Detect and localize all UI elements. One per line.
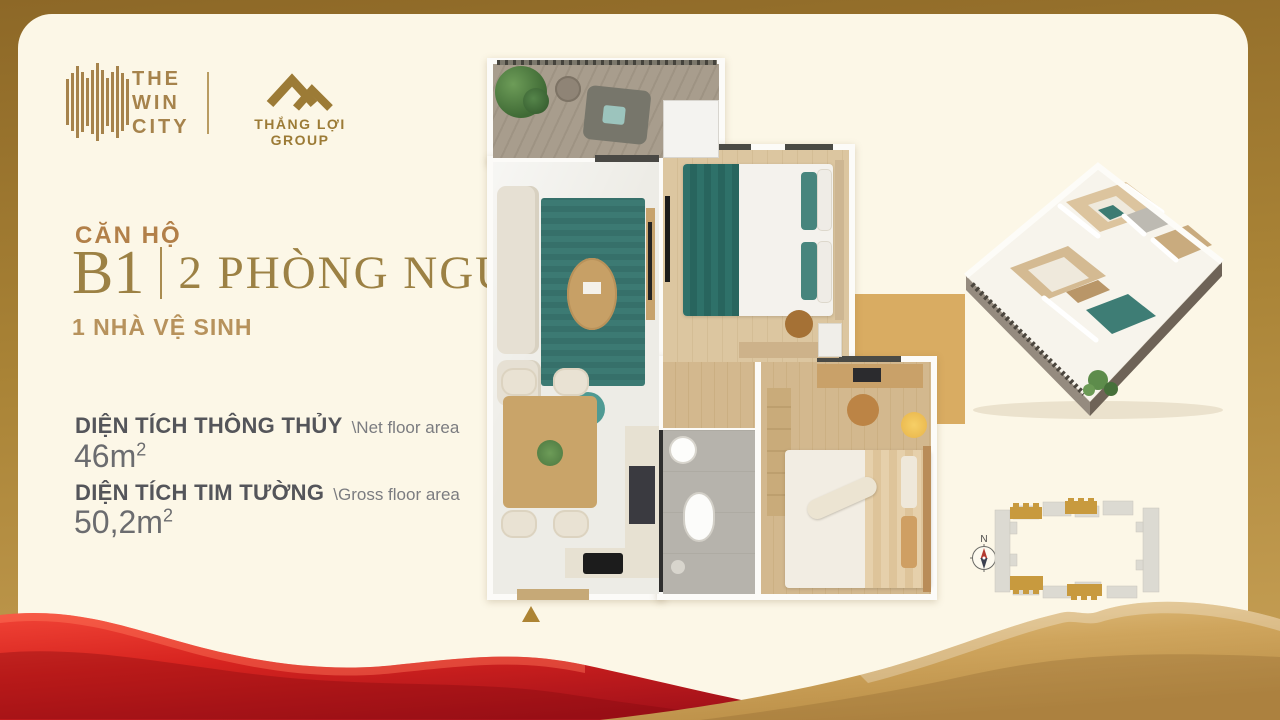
gross-area-label: DIỆN TÍCH TIM TƯỜNG (75, 480, 324, 506)
bedroom2-entry-floor (663, 362, 755, 428)
fridge (629, 466, 655, 524)
dining-plant (537, 440, 563, 466)
toilet (685, 494, 713, 540)
bedroom1-window (785, 144, 833, 150)
logo-divider (207, 72, 209, 134)
ribbon-waves (0, 545, 1280, 720)
logo-line: WIN (132, 91, 190, 115)
bed-1-headboard (835, 160, 844, 320)
bedroom1-tv (665, 196, 670, 282)
pillow (818, 170, 831, 230)
unit-bedrooms: 2 PHÒNG NGỦ (178, 247, 511, 299)
nightstand (819, 324, 841, 356)
dining-chair (553, 368, 589, 396)
coffee-table-book (583, 282, 601, 294)
balcony-sliding-door (595, 155, 659, 162)
bedroom1-stool (785, 310, 813, 338)
win-city-logo-text: THE WIN CITY (132, 67, 190, 139)
brochure-page: THE WIN CITY THẮNG LỢI GROUP CĂN HỘ B1 2… (0, 0, 1280, 720)
pillow (818, 242, 831, 302)
net-area-label: DIỆN TÍCH THÔNG THỦY (75, 413, 343, 439)
net-area-sublabel: \Net floor area (352, 418, 460, 438)
unit-title-row: B1 2 PHÒNG NGỦ (72, 242, 511, 304)
balcony-cabinet (663, 100, 719, 158)
gross-area-value: 50,2m2 (74, 504, 173, 541)
floor-plan (487, 58, 967, 620)
pillow (901, 456, 917, 508)
logo-line: THE (132, 67, 190, 91)
sofa (497, 186, 539, 354)
sink (671, 438, 695, 462)
win-city-logo-icon (66, 62, 129, 142)
isometric-3d-view (948, 150, 1238, 420)
net-area-value: 46m2 (74, 438, 146, 475)
tv (648, 222, 652, 300)
desk-chair (847, 394, 879, 426)
gross-area-label-row: DIỆN TÍCH TIM TƯỜNG \Gross floor area (75, 480, 460, 506)
dining-chair (501, 510, 537, 538)
logo-line: CITY (132, 115, 190, 139)
balcony-cushion (602, 105, 626, 125)
balcony-table (555, 76, 581, 102)
gross-area-sublabel: \Gross floor area (333, 485, 460, 505)
coffee-table (567, 258, 617, 330)
pillow (801, 172, 817, 230)
pillow (801, 242, 817, 300)
thang-loi-logo-text: THẮNG LỢI GROUP (228, 116, 372, 148)
bed-1-teal-blanket (683, 164, 739, 316)
thang-loi-logo-icon (262, 68, 338, 112)
dining-chair (553, 510, 589, 538)
unit-title-divider (160, 247, 162, 299)
unit-bathrooms: 1 NHÀ VỆ SINH (72, 314, 252, 341)
laptop (853, 368, 881, 382)
balcony-plant (495, 66, 547, 118)
unit-code: B1 (72, 242, 144, 304)
svg-text:N: N (980, 534, 987, 545)
balcony-railing (497, 60, 717, 65)
bedside-lamp (901, 412, 927, 438)
dining-chair (501, 368, 537, 396)
net-area-label-row: DIỆN TÍCH THÔNG THỦY \Net floor area (75, 413, 459, 439)
